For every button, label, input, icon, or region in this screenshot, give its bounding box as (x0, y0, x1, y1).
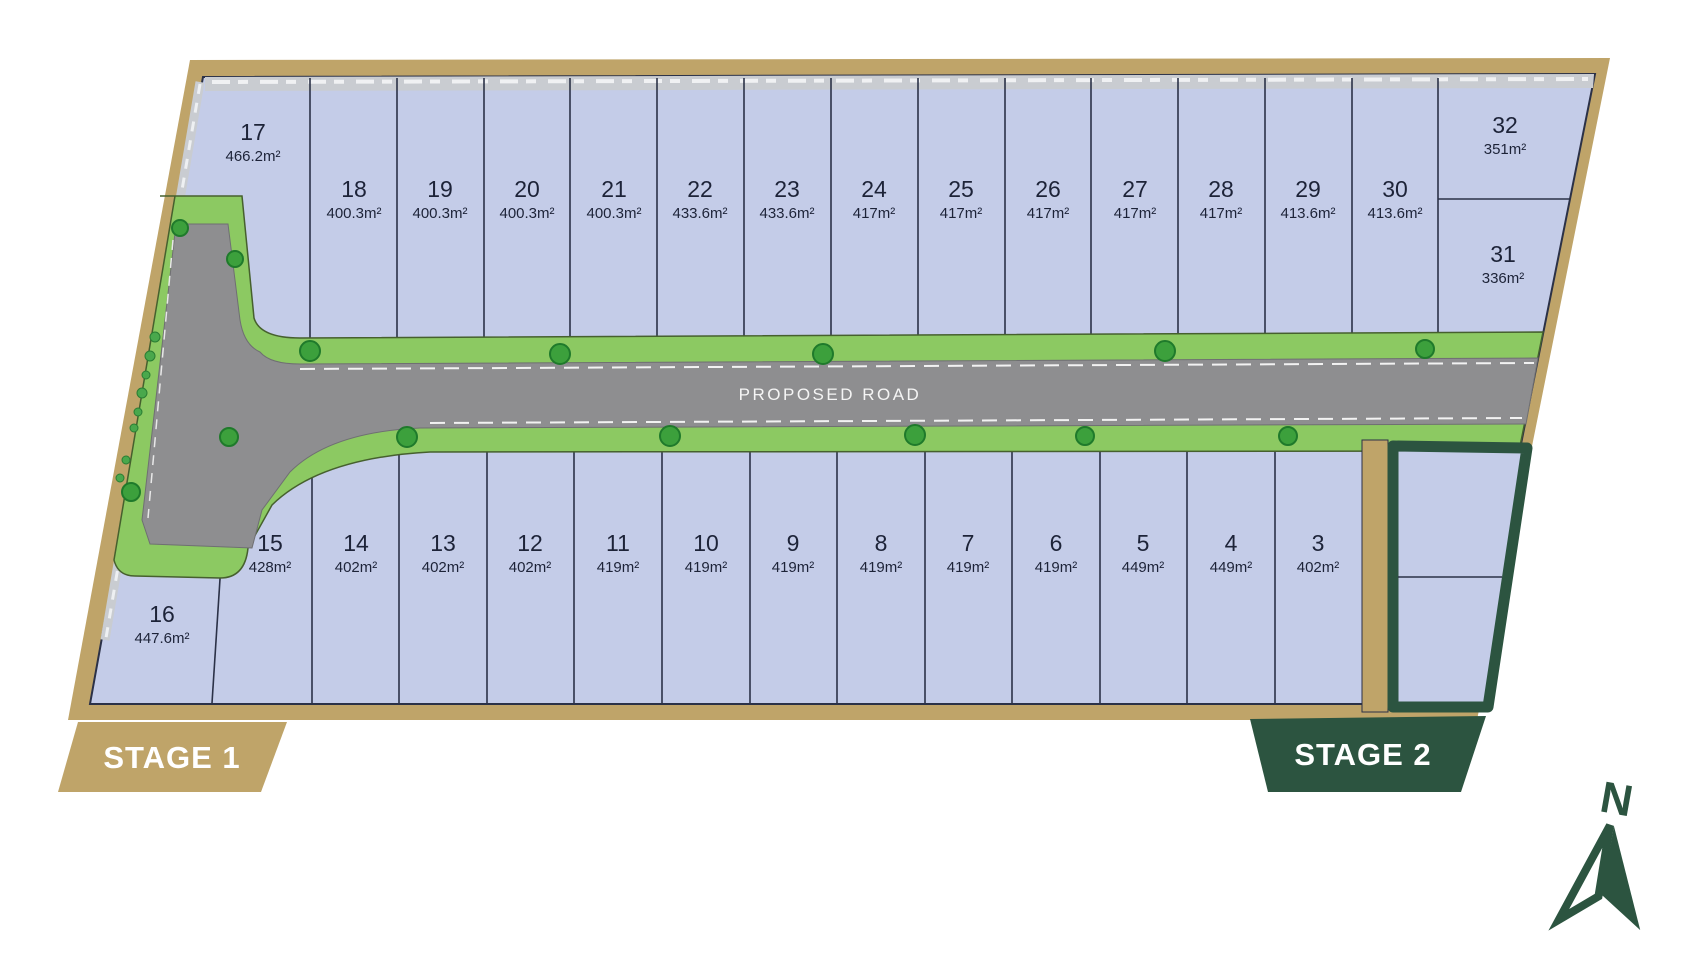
lot-32-area: 351m² (1484, 141, 1527, 158)
lot-20-area: 400.3m² (499, 205, 554, 222)
lot-8-number: 8 (875, 530, 888, 556)
lot-19-number: 19 (427, 176, 453, 202)
lot-14-area: 402m² (335, 559, 378, 576)
tree-icon (1076, 427, 1094, 445)
lot-30-number: 30 (1382, 176, 1408, 202)
bush-icon (145, 351, 155, 361)
tree-icon (227, 251, 243, 267)
tree-icon (660, 426, 680, 446)
compass-arrow-outline (1559, 819, 1611, 926)
lot-11-number: 11 (606, 530, 630, 556)
lot-7-area: 419m² (947, 559, 990, 576)
lot-23-area: 433.6m² (759, 205, 814, 222)
lot-5-area: 449m² (1122, 559, 1165, 576)
lot-25-area: 417m² (940, 205, 983, 222)
lot-15-number: 15 (257, 530, 283, 556)
lot-24-area: 417m² (853, 205, 896, 222)
bush-icon (150, 332, 160, 342)
tree-icon (813, 344, 833, 364)
lot-26-area: 417m² (1027, 205, 1070, 222)
lot-18-area: 400.3m² (326, 205, 381, 222)
lot-28-area: 417m² (1200, 205, 1243, 222)
lot-19-area: 400.3m² (412, 205, 467, 222)
tree-icon (550, 344, 570, 364)
tree-icon (122, 483, 140, 501)
lot-10-area: 419m² (685, 559, 728, 576)
lot-27-area: 417m² (1114, 205, 1157, 222)
bush-icon (122, 456, 130, 464)
site-plan: 17466.2m²18400.3m²19400.3m²20400.3m²2140… (0, 0, 1696, 960)
lot-14-number: 14 (343, 530, 369, 556)
lot-17-number: 17 (240, 119, 266, 145)
bush-icon (134, 408, 142, 416)
lot-30-area: 413.6m² (1367, 205, 1422, 222)
lot-31-area: 336m² (1482, 270, 1525, 287)
lot-9-area: 419m² (772, 559, 815, 576)
lot-8-area: 419m² (860, 559, 903, 576)
lot-20-number: 20 (514, 176, 540, 202)
tree-icon (300, 341, 320, 361)
lot-10-number: 10 (693, 530, 719, 556)
lot-29-number: 29 (1295, 176, 1321, 202)
lot-12-area: 402m² (509, 559, 552, 576)
bush-icon (116, 474, 124, 482)
lot-27-number: 27 (1122, 176, 1148, 202)
lot-31-number: 31 (1490, 241, 1516, 267)
lot-18-number: 18 (341, 176, 367, 202)
site-plan-svg: 17466.2m²18400.3m²19400.3m²20400.3m²2140… (0, 0, 1696, 960)
tree-icon (905, 425, 925, 445)
stage1-label: STAGE 1 (103, 740, 240, 775)
tree-icon (1279, 427, 1297, 445)
lot-7-number: 7 (962, 530, 975, 556)
lot-17-area: 466.2m² (225, 148, 280, 165)
lot-13-area: 402m² (422, 559, 465, 576)
lot-21-area: 400.3m² (586, 205, 641, 222)
lot-3-area: 402m² (1297, 559, 1340, 576)
lot-9-number: 9 (787, 530, 800, 556)
lot-22-area: 433.6m² (672, 205, 727, 222)
tree-icon (172, 220, 188, 236)
lot-11-area: 419m² (597, 559, 640, 576)
lot-6-number: 6 (1050, 530, 1063, 556)
lot-21-number: 21 (601, 176, 627, 202)
tree-icon (397, 427, 417, 447)
tree-icon (1416, 340, 1434, 358)
north-label: N (1597, 773, 1637, 827)
lot-32-number: 32 (1492, 112, 1518, 138)
lot-4-number: 4 (1225, 530, 1238, 556)
lot-13-number: 13 (430, 530, 456, 556)
lot-25-number: 25 (948, 176, 974, 202)
lot-26-number: 26 (1035, 176, 1061, 202)
lot-4-area: 449m² (1210, 559, 1253, 576)
road-label: PROPOSED ROAD (739, 385, 922, 404)
lot-3-number: 3 (1312, 530, 1325, 556)
lot-24-number: 24 (861, 176, 887, 202)
stage2-label: STAGE 2 (1294, 737, 1431, 772)
lot-16-area: 447.6m² (134, 630, 189, 647)
bush-icon (130, 424, 138, 432)
bush-icon (137, 388, 147, 398)
lot-12-number: 12 (517, 530, 543, 556)
lot-23-number: 23 (774, 176, 800, 202)
tree-icon (220, 428, 238, 446)
stage-boundary-strip (1362, 440, 1388, 712)
lot-29-area: 413.6m² (1280, 205, 1335, 222)
lot-15-area: 428m² (249, 559, 292, 576)
tree-icon (1155, 341, 1175, 361)
lot-16-number: 16 (149, 601, 175, 627)
bush-icon (142, 371, 150, 379)
lot-5-number: 5 (1137, 530, 1150, 556)
lot-22-number: 22 (687, 176, 713, 202)
lot-6-area: 419m² (1035, 559, 1078, 576)
north-compass: N (1559, 769, 1666, 934)
lot-28-number: 28 (1208, 176, 1234, 202)
